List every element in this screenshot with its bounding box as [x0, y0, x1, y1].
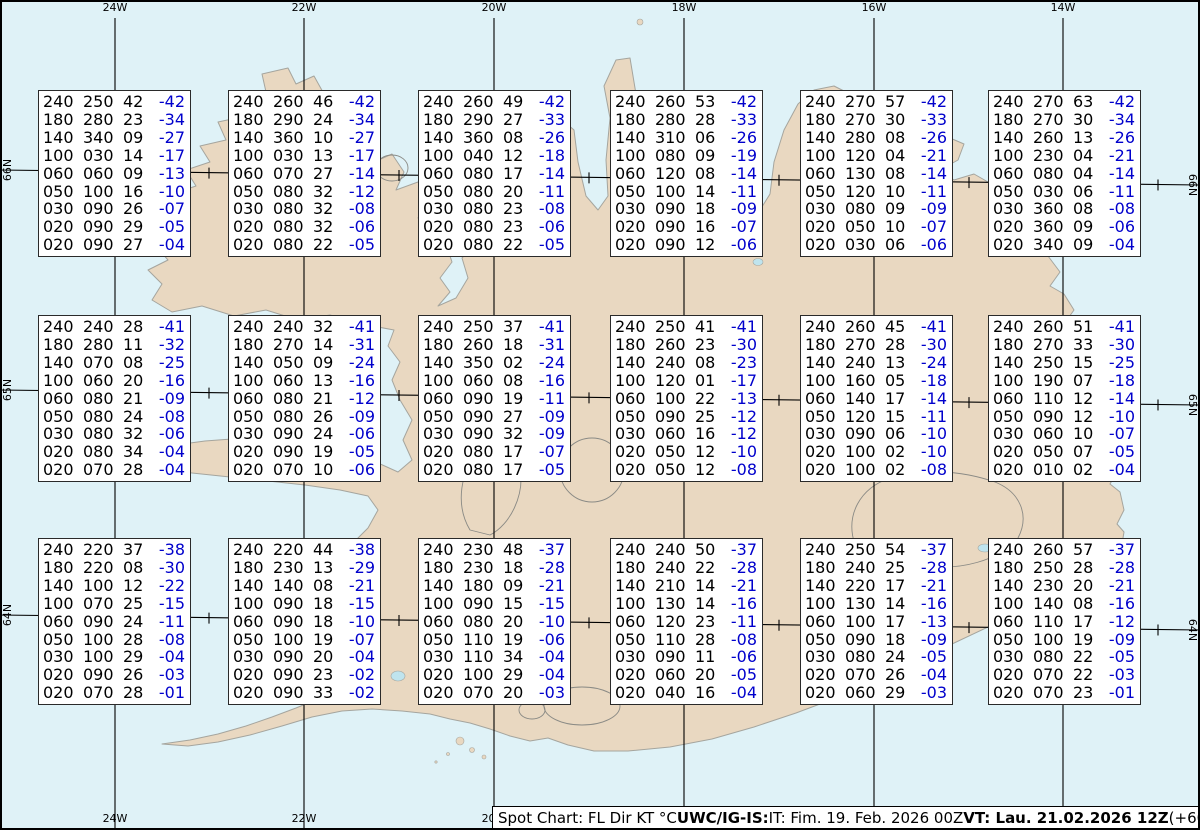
spot-row: 14026013-26: [993, 129, 1135, 147]
fl-value: 100: [423, 595, 454, 613]
fl-value: 020: [423, 443, 454, 461]
kt-value: 27: [123, 236, 145, 254]
kt-value: 09: [885, 200, 907, 218]
kt-value: 08: [123, 559, 145, 577]
dir-value: 080: [463, 236, 494, 254]
kt-value: 28: [885, 336, 907, 354]
kt-value: 24: [885, 648, 907, 666]
kt-value: 19: [503, 631, 525, 649]
fl-value: 020: [615, 236, 646, 254]
kt-value: 17: [503, 443, 525, 461]
kt-value: 23: [503, 200, 525, 218]
temp-value: -12: [344, 183, 375, 201]
dir-value: 310: [655, 129, 686, 147]
temp-value: -25: [1104, 354, 1135, 372]
kt-value: 26: [885, 666, 907, 684]
temp-value: -06: [534, 631, 565, 649]
fl-value: 140: [993, 577, 1024, 595]
kt-value: 24: [313, 111, 335, 129]
spot-row: 06012008-14: [615, 165, 757, 183]
kt-value: 27: [503, 111, 525, 129]
fl-value: 060: [805, 613, 836, 631]
spot-row: 05009012-10: [993, 408, 1135, 426]
fl-value: 140: [43, 129, 74, 147]
spot-row: 03011034-04: [423, 648, 565, 666]
spot-row: 06009018-10: [233, 613, 375, 631]
kt-value: 25: [885, 559, 907, 577]
dir-value: 350: [463, 354, 494, 372]
spot-row: 03008032-06: [43, 425, 185, 443]
kt-value: 42: [123, 93, 145, 111]
fl-value: 140: [993, 354, 1024, 372]
fl-value: 240: [805, 93, 836, 111]
dir-value: 120: [845, 147, 876, 165]
dir-value: 030: [273, 147, 304, 165]
dir-value: 080: [83, 443, 114, 461]
kt-value: 23: [313, 666, 335, 684]
kt-value: 08: [313, 577, 335, 595]
kt-value: 46: [313, 93, 335, 111]
dir-value: 160: [845, 372, 876, 390]
kt-value: 12: [695, 236, 717, 254]
dir-value: 260: [463, 336, 494, 354]
kt-value: 13: [1073, 129, 1095, 147]
kt-value: 34: [503, 648, 525, 666]
spot-row: 03008024-05: [805, 648, 947, 666]
spot-row: 02009029-05: [43, 218, 185, 236]
kt-value: 34: [123, 443, 145, 461]
temp-value: -07: [1104, 425, 1135, 443]
temp-value: -13: [916, 613, 947, 631]
temp-value: -08: [726, 461, 757, 479]
fl-value: 030: [615, 425, 646, 443]
temp-value: -41: [1104, 318, 1135, 336]
dir-value: 090: [463, 390, 494, 408]
dir-value: 070: [83, 684, 114, 702]
spot-row: 06006009-13: [43, 165, 185, 183]
kt-value: 41: [695, 318, 717, 336]
spot-row: 10004012-18: [423, 147, 565, 165]
kt-value: 24: [313, 425, 335, 443]
temp-value: -17: [154, 147, 185, 165]
dir-value: 360: [463, 129, 494, 147]
kt-value: 09: [123, 129, 145, 147]
dir-value: 230: [1033, 147, 1064, 165]
temp-value: -17: [344, 147, 375, 165]
fl-value: 060: [233, 165, 264, 183]
dir-value: 110: [1033, 613, 1064, 631]
dir-value: 120: [655, 372, 686, 390]
fl-value: 180: [805, 336, 836, 354]
kt-value: 23: [1073, 684, 1095, 702]
fl-value: 020: [615, 461, 646, 479]
dir-value: 250: [655, 318, 686, 336]
spot-row: 06008021-12: [233, 390, 375, 408]
temp-value: -27: [344, 129, 375, 147]
fl-value: 030: [233, 648, 264, 666]
fl-value: 100: [993, 147, 1024, 165]
temp-value: -21: [1104, 577, 1135, 595]
temp-value: -37: [534, 541, 565, 559]
dir-value: 100: [655, 183, 686, 201]
temp-value: -04: [1104, 461, 1135, 479]
dir-value: 060: [655, 666, 686, 684]
kt-value: 16: [695, 218, 717, 236]
spot-row: 05010016-10: [43, 183, 185, 201]
fl-value: 100: [43, 595, 74, 613]
spot-row: 06010022-13: [615, 390, 757, 408]
spot-row: 24022044-38: [233, 541, 375, 559]
dir-value: 230: [273, 559, 304, 577]
kt-value: 29: [123, 218, 145, 236]
kt-value: 27: [503, 408, 525, 426]
kt-value: 08: [1073, 200, 1095, 218]
spot-row: 02005007-05: [993, 443, 1135, 461]
spot-row: 10006020-16: [43, 372, 185, 390]
spot-row: 14005009-24: [233, 354, 375, 372]
spot-row: 03006016-12: [615, 425, 757, 443]
temp-value: -07: [344, 631, 375, 649]
fl-value: 180: [615, 559, 646, 577]
spot-box: 24025042-4218028023-3414034009-271000301…: [38, 90, 191, 257]
temp-value: -21: [916, 147, 947, 165]
dir-value: 090: [655, 200, 686, 218]
kt-value: 06: [1073, 183, 1095, 201]
dir-value: 110: [463, 648, 494, 666]
fl-value: 180: [615, 111, 646, 129]
spot-row: 24022037-38: [43, 541, 185, 559]
spot-row: 05010028-08: [43, 631, 185, 649]
temp-value: -33: [916, 111, 947, 129]
kt-value: 21: [123, 390, 145, 408]
temp-value: -15: [154, 595, 185, 613]
kt-value: 07: [1073, 443, 1095, 461]
fl-value: 020: [43, 218, 74, 236]
spot-row: 03008009-09: [805, 200, 947, 218]
temp-value: -04: [154, 443, 185, 461]
dir-value: 340: [1033, 236, 1064, 254]
spot-row: 10008009-19: [615, 147, 757, 165]
kt-value: 24: [123, 613, 145, 631]
kt-value: 37: [503, 318, 525, 336]
kt-value: 30: [885, 111, 907, 129]
temp-value: -27: [154, 129, 185, 147]
spot-row: 06009019-11: [423, 390, 565, 408]
fl-value: 030: [805, 648, 836, 666]
kt-value: 26: [313, 408, 335, 426]
temp-value: -11: [726, 613, 757, 631]
fl-value: 060: [233, 613, 264, 631]
dir-value: 090: [273, 613, 304, 631]
fl-value: 240: [805, 541, 836, 559]
fl-value: 020: [423, 218, 454, 236]
fl-value: 030: [993, 425, 1024, 443]
spot-row: 18027014-31: [233, 336, 375, 354]
fl-value: 240: [43, 318, 74, 336]
spot-row: 06011017-12: [993, 613, 1135, 631]
kt-value: 18: [885, 631, 907, 649]
temp-value: -21: [344, 577, 375, 595]
fl-value: 020: [423, 666, 454, 684]
fl-value: 060: [805, 165, 836, 183]
fl-value: 180: [993, 336, 1024, 354]
lon-label-bottom: 22W: [292, 813, 317, 825]
temp-value: -24: [534, 354, 565, 372]
spot-row: 24026046-42: [233, 93, 375, 111]
temp-value: -14: [726, 165, 757, 183]
dir-value: 090: [273, 595, 304, 613]
kt-value: 09: [1073, 236, 1095, 254]
temp-value: -10: [154, 183, 185, 201]
spot-row: 02009026-03: [43, 666, 185, 684]
temp-value: -08: [534, 200, 565, 218]
temp-value: -08: [1104, 200, 1135, 218]
temp-value: -09: [916, 200, 947, 218]
dir-value: 090: [273, 684, 304, 702]
spot-row: 14025015-25: [993, 354, 1135, 372]
fl-value: 030: [233, 425, 264, 443]
kt-value: 08: [885, 165, 907, 183]
fl-value: 140: [993, 129, 1024, 147]
spot-row: 02009016-07: [615, 218, 757, 236]
kt-value: 14: [123, 147, 145, 165]
spot-row: 24026051-41: [993, 318, 1135, 336]
spot-row: 06008017-14: [423, 165, 565, 183]
kt-value: 14: [695, 577, 717, 595]
dir-value: 080: [463, 183, 494, 201]
temp-value: -07: [916, 218, 947, 236]
fl-value: 240: [993, 318, 1024, 336]
temp-value: -11: [916, 408, 947, 426]
spot-row: 18028023-34: [43, 111, 185, 129]
kt-value: 28: [123, 684, 145, 702]
dir-value: 080: [463, 461, 494, 479]
spot-row: 02007026-04: [805, 666, 947, 684]
dir-value: 080: [273, 183, 304, 201]
temp-value: -05: [1104, 443, 1135, 461]
lon-label-top: 18W: [672, 2, 697, 14]
dir-value: 030: [845, 236, 876, 254]
dir-value: 260: [845, 318, 876, 336]
fl-value: 050: [805, 183, 836, 201]
spot-row: 03008022-05: [993, 648, 1135, 666]
fl-value: 020: [993, 666, 1024, 684]
dir-value: 260: [1033, 129, 1064, 147]
temp-value: -05: [534, 461, 565, 479]
lon-label-top: 16W: [862, 2, 887, 14]
spot-row: 02004016-04: [615, 684, 757, 702]
footer-text-segment: (+60 h): [1169, 809, 1200, 827]
kt-value: 11: [695, 648, 717, 666]
dir-value: 090: [273, 443, 304, 461]
temp-value: -11: [534, 390, 565, 408]
lat-label-right: 66N: [1186, 174, 1198, 196]
kt-value: 13: [313, 147, 335, 165]
dir-value: 270: [1033, 93, 1064, 111]
kt-value: 01: [695, 372, 717, 390]
dir-value: 240: [845, 559, 876, 577]
temp-value: -29: [344, 559, 375, 577]
spot-row: 02009023-02: [233, 666, 375, 684]
kt-value: 25: [695, 408, 717, 426]
spot-row: 02007023-01: [993, 684, 1135, 702]
temp-value: -28: [1104, 559, 1135, 577]
fl-value: 050: [805, 631, 836, 649]
fl-value: 020: [993, 461, 1024, 479]
temp-value: -41: [344, 318, 375, 336]
dir-value: 090: [655, 648, 686, 666]
footer-text-segment: VT: Lau. 21.02.2026 12Z: [963, 809, 1168, 827]
spot-row: 03009011-06: [615, 648, 757, 666]
dir-value: 240: [655, 541, 686, 559]
temp-value: -05: [916, 648, 947, 666]
fl-value: 180: [233, 336, 264, 354]
kt-value: 17: [1073, 613, 1095, 631]
kt-value: 02: [1073, 461, 1095, 479]
temp-value: -11: [916, 183, 947, 201]
dir-value: 090: [83, 666, 114, 684]
temp-value: -11: [154, 613, 185, 631]
spot-row: 02009012-06: [615, 236, 757, 254]
fl-value: 240: [233, 541, 264, 559]
dir-value: 070: [463, 684, 494, 702]
kt-value: 12: [695, 443, 717, 461]
temp-value: -04: [534, 648, 565, 666]
dir-value: 050: [655, 461, 686, 479]
spot-box: 24027063-4218027030-3414026013-261002300…: [988, 90, 1141, 257]
fl-value: 100: [423, 147, 454, 165]
kt-value: 16: [123, 183, 145, 201]
dir-value: 090: [463, 425, 494, 443]
spot-row: 10014008-16: [993, 595, 1135, 613]
dir-value: 110: [655, 631, 686, 649]
kt-value: 32: [313, 200, 335, 218]
kt-value: 11: [123, 336, 145, 354]
temp-value: -06: [344, 461, 375, 479]
dir-value: 090: [83, 236, 114, 254]
spot-row: 10003014-17: [43, 147, 185, 165]
temp-value: -09: [1104, 631, 1135, 649]
fl-value: 180: [43, 336, 74, 354]
temp-value: -08: [154, 408, 185, 426]
kt-value: 18: [695, 200, 717, 218]
temp-value: -17: [726, 372, 757, 390]
kt-value: 48: [503, 541, 525, 559]
temp-value: -37: [1104, 541, 1135, 559]
kt-value: 08: [695, 354, 717, 372]
spot-row: 02007010-06: [233, 461, 375, 479]
fl-value: 060: [615, 613, 646, 631]
dir-value: 190: [1033, 372, 1064, 390]
fl-value: 030: [805, 425, 836, 443]
fl-value: 240: [615, 318, 646, 336]
spot-row: 03008023-08: [423, 200, 565, 218]
spot-row: 06008004-14: [993, 165, 1135, 183]
fl-value: 060: [423, 165, 454, 183]
temp-value: -42: [1104, 93, 1135, 111]
temp-value: -09: [344, 408, 375, 426]
spot-row: 10023004-21: [993, 147, 1135, 165]
temp-value: -41: [154, 318, 185, 336]
fl-value: 030: [615, 200, 646, 218]
kt-value: 25: [123, 595, 145, 613]
kt-value: 26: [123, 666, 145, 684]
kt-value: 12: [1073, 390, 1095, 408]
spot-row: 05011028-08: [615, 631, 757, 649]
spot-row: 24025037-41: [423, 318, 565, 336]
temp-value: -06: [344, 218, 375, 236]
spot-row: 03009018-09: [615, 200, 757, 218]
kt-value: 06: [695, 129, 717, 147]
footer-text-segment: IT: Fim. 19. Feb. 2026 00Z: [769, 809, 964, 827]
spot-row: 10007025-15: [43, 595, 185, 613]
kt-value: 14: [695, 595, 717, 613]
kt-value: 37: [123, 541, 145, 559]
temp-value: -26: [726, 129, 757, 147]
fl-value: 050: [993, 183, 1024, 201]
spot-box: 24022044-3818023013-2914014008-211000901…: [228, 538, 381, 705]
temp-value: -14: [1104, 165, 1135, 183]
temp-value: -02: [344, 666, 375, 684]
temp-value: -14: [534, 165, 565, 183]
kt-value: 15: [1073, 354, 1095, 372]
spot-row: 24024028-41: [43, 318, 185, 336]
temp-value: -04: [1104, 236, 1135, 254]
temp-value: -14: [916, 165, 947, 183]
spot-row: 02001002-04: [993, 461, 1135, 479]
kt-value: 57: [1073, 541, 1095, 559]
kt-value: 26: [123, 200, 145, 218]
dir-value: 080: [463, 218, 494, 236]
temp-value: -26: [916, 129, 947, 147]
fl-value: 240: [615, 93, 646, 111]
dir-value: 240: [655, 354, 686, 372]
spot-row: 14018009-21: [423, 577, 565, 595]
spot-row: 03006010-07: [993, 425, 1135, 443]
kt-value: 22: [695, 559, 717, 577]
temp-value: -16: [344, 372, 375, 390]
dir-value: 010: [1033, 461, 1064, 479]
spot-row: 14022017-21: [805, 577, 947, 595]
kt-value: 16: [695, 425, 717, 443]
lon-label-top: 22W: [292, 2, 317, 14]
spot-row: 18027028-30: [805, 336, 947, 354]
temp-value: -21: [534, 577, 565, 595]
dir-value: 090: [463, 408, 494, 426]
kt-value: 08: [695, 165, 717, 183]
spot-row: 24026057-37: [993, 541, 1135, 559]
fl-value: 180: [43, 559, 74, 577]
kt-value: 04: [885, 147, 907, 165]
temp-value: -08: [154, 631, 185, 649]
temp-value: -14: [344, 165, 375, 183]
kt-value: 08: [503, 372, 525, 390]
spot-row: 18026023-30: [615, 336, 757, 354]
temp-value: -41: [916, 318, 947, 336]
fl-value: 050: [615, 183, 646, 201]
spot-box: 24025037-4118026018-3114035002-241000600…: [418, 315, 571, 482]
spot-row: 06013008-14: [805, 165, 947, 183]
dir-value: 140: [845, 390, 876, 408]
temp-value: -11: [1104, 183, 1135, 201]
temp-value: -01: [1104, 684, 1135, 702]
spot-row: 02010002-08: [805, 461, 947, 479]
temp-value: -37: [916, 541, 947, 559]
fl-value: 140: [805, 354, 836, 372]
kt-value: 20: [695, 666, 717, 684]
temp-value: -31: [344, 336, 375, 354]
fl-value: 030: [423, 200, 454, 218]
